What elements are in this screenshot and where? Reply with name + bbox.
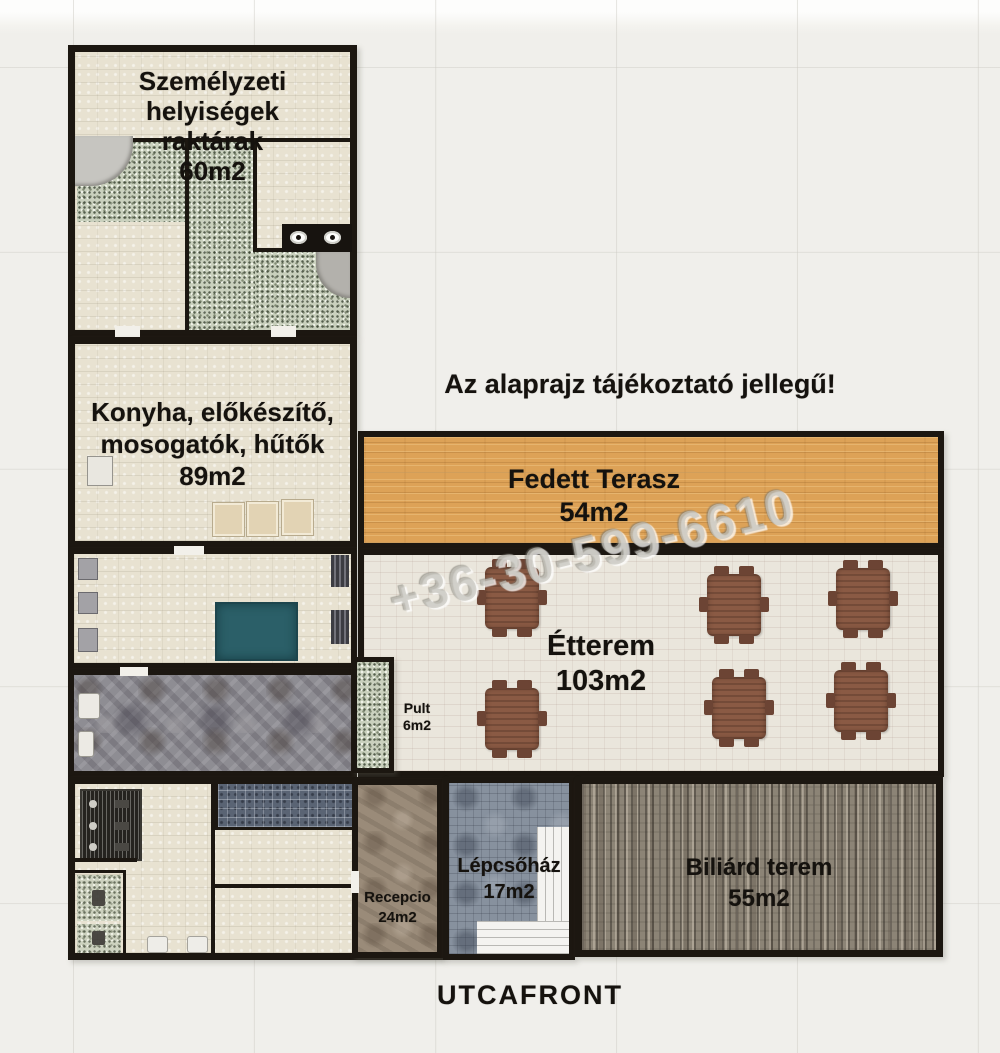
room-name: Fedett Terasz [424,463,764,496]
room-name: Biliárd terem [582,852,936,883]
room-label-line: helyiségek [75,96,350,126]
toilet-fixture [92,890,105,906]
chair [887,693,896,708]
chair [843,629,858,638]
room-label-staircase: Lépcsőház 17m2 [424,853,594,905]
sink-fixture [187,936,208,953]
chair [866,731,881,740]
chair [868,629,883,638]
prep-table [215,602,298,661]
chair [492,749,507,758]
room-label-counter: Pult 6m2 [394,700,440,734]
grill-station [80,789,142,861]
door-opening [174,546,204,555]
chair [868,560,883,569]
interior-wall [123,870,126,953]
room-label-restaurant: Étterem 103m2 [364,629,838,699]
burner-icon [89,800,97,808]
room-counter [352,657,394,773]
locker-fixture [78,558,98,580]
room-label-line: Konyha, előkészítő, [75,396,350,428]
chair [744,738,759,747]
stove-counter [282,224,352,252]
toilet-fixture [78,731,94,757]
burner-icon [290,231,307,244]
room-label-staff: Személyzeti helyiségek raktárak 60m2 [75,66,350,186]
chair [841,731,856,740]
chair [719,738,734,747]
counter-unit [247,502,278,536]
chair [739,566,754,575]
chair [517,749,532,758]
chair [841,662,856,671]
room-name: Pult [394,700,440,717]
door-opening [120,667,148,676]
area-label: 55m2 [582,883,936,914]
vent-fixture [115,800,129,808]
area-label: 60m2 [75,156,350,186]
room-name: Étterem [364,629,838,664]
chair [714,566,729,575]
chair [704,700,713,715]
room-staircase: Lépcsőház 17m2 [443,777,575,960]
interior-wall [75,870,125,873]
locker-fixture [78,592,98,614]
restroom-floor [77,875,121,921]
radiator-fixture [331,555,349,587]
street-front-label: UTCAFRONT [420,980,640,1011]
counter-unit [213,503,244,536]
area-label: 17m2 [424,879,594,905]
room-label-billiard: Biliárd terem 55m2 [582,852,936,914]
area-label: 24m2 [352,908,443,928]
vent-fixture [115,843,129,851]
room-staff-quarters: Személyzeti helyiségek raktárak 60m2 [68,45,357,337]
interior-wall [215,884,358,888]
room-label-line: raktárak [75,126,350,156]
room-corridor [68,669,357,777]
area-label: 6m2 [394,717,440,734]
chair [699,597,708,612]
sink-fixture [147,936,168,953]
tiled-floor-area [215,784,358,830]
chair [760,597,769,612]
room-label-line: mosogatók, hűtők [75,428,350,460]
toilet-fixture [92,931,105,945]
floorplan-canvas: Személyzeti helyiségek raktárak 60m2 Kon… [0,0,1000,1053]
disclaimer-text: Az alaprajz tájékoztató jellegű! [400,369,880,400]
room-billiard: Biliárd terem 55m2 [575,777,943,957]
area-label: 89m2 [75,460,350,492]
chair [843,560,858,569]
chair [828,591,837,606]
chair [866,662,881,671]
vent-fixture [115,822,129,830]
chair [538,711,547,726]
chair [889,591,898,606]
room-prep [68,548,357,669]
chair [477,711,486,726]
room-label-kitchen: Konyha, előkészítő, mosogatók, hűtők 89m… [75,396,350,492]
burner-icon [89,822,97,830]
radiator-fixture [331,610,349,644]
room-name: Lépcsőház [424,853,594,879]
restroom-floor [77,924,121,953]
burner-icon [324,231,341,244]
interior-wall [211,784,215,953]
burner-icon [89,843,97,851]
counter-unit [282,500,313,535]
area-label: 103m2 [364,664,838,699]
stairs-run-horizontal [477,921,569,954]
chair [765,700,774,715]
dining-table [707,574,761,636]
dining-table [836,568,890,630]
dining-table [834,670,888,732]
room-kitchen: Konyha, előkészítő, mosogatók, hűtők 89m… [68,337,357,548]
room-label-line: Személyzeti [75,66,350,96]
toilet-fixture [78,693,100,719]
locker-fixture [78,628,98,652]
interior-wall [75,858,137,862]
